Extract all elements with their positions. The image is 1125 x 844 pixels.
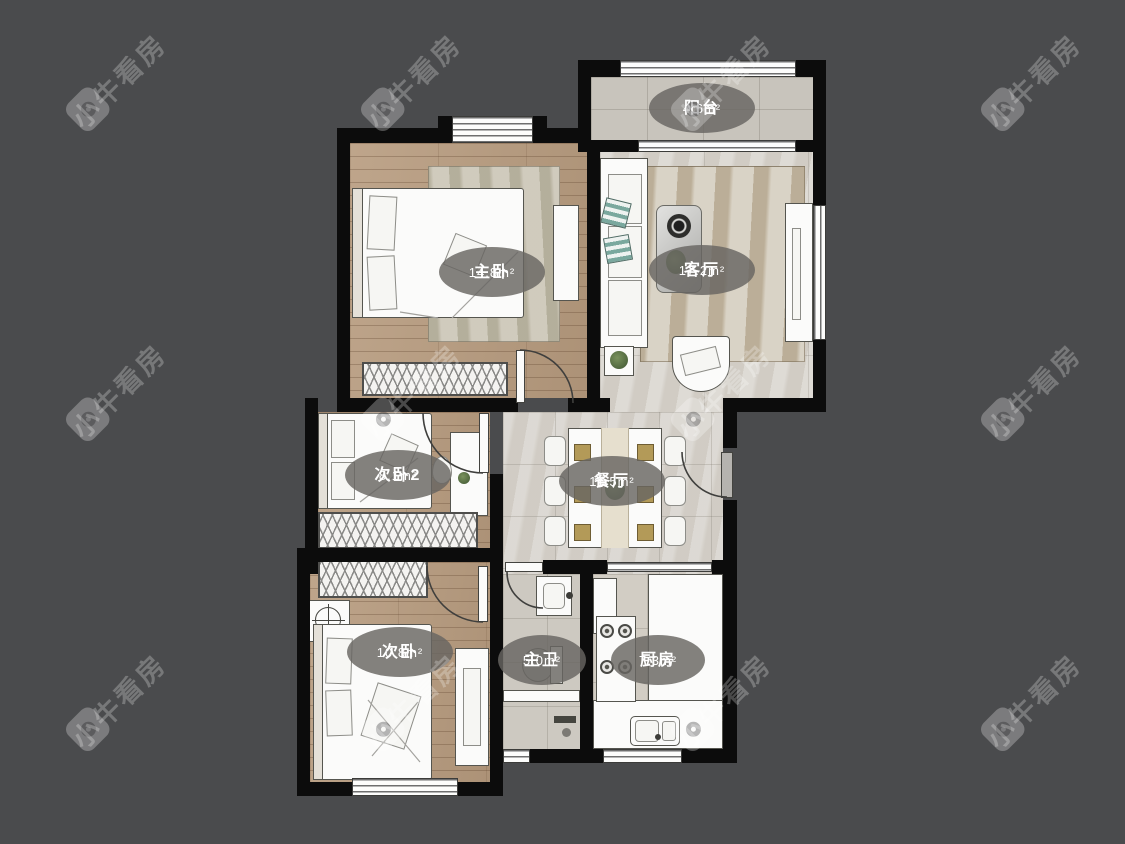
brand-text: 小牛看房 <box>61 643 173 755</box>
watermark-layer: 小牛看房小牛看房小牛看房小牛看房小牛看房小牛看房小牛看房小牛看房小牛看房小牛看房… <box>0 0 1125 844</box>
brand-text: 小牛看房 <box>61 333 173 445</box>
brand-text: 小牛看房 <box>666 333 778 445</box>
brand-text: 小牛看房 <box>666 23 778 135</box>
brand-text: 小牛看房 <box>61 23 173 135</box>
brand-text: 小牛看房 <box>976 23 1088 135</box>
brand-text: 小牛看房 <box>976 333 1088 445</box>
brand-text: 小牛看房 <box>666 643 778 755</box>
brand-text: 小牛看房 <box>356 23 468 135</box>
brand-text: 小牛看房 <box>356 333 468 445</box>
brand-text: 小牛看房 <box>356 643 468 755</box>
floor-plan-image: 阳台 4.6m² 主卧 14.8m² 客厅 17.2m² 次卧2 8.1m² 餐… <box>0 0 1125 844</box>
brand-text: 小牛看房 <box>976 643 1088 755</box>
